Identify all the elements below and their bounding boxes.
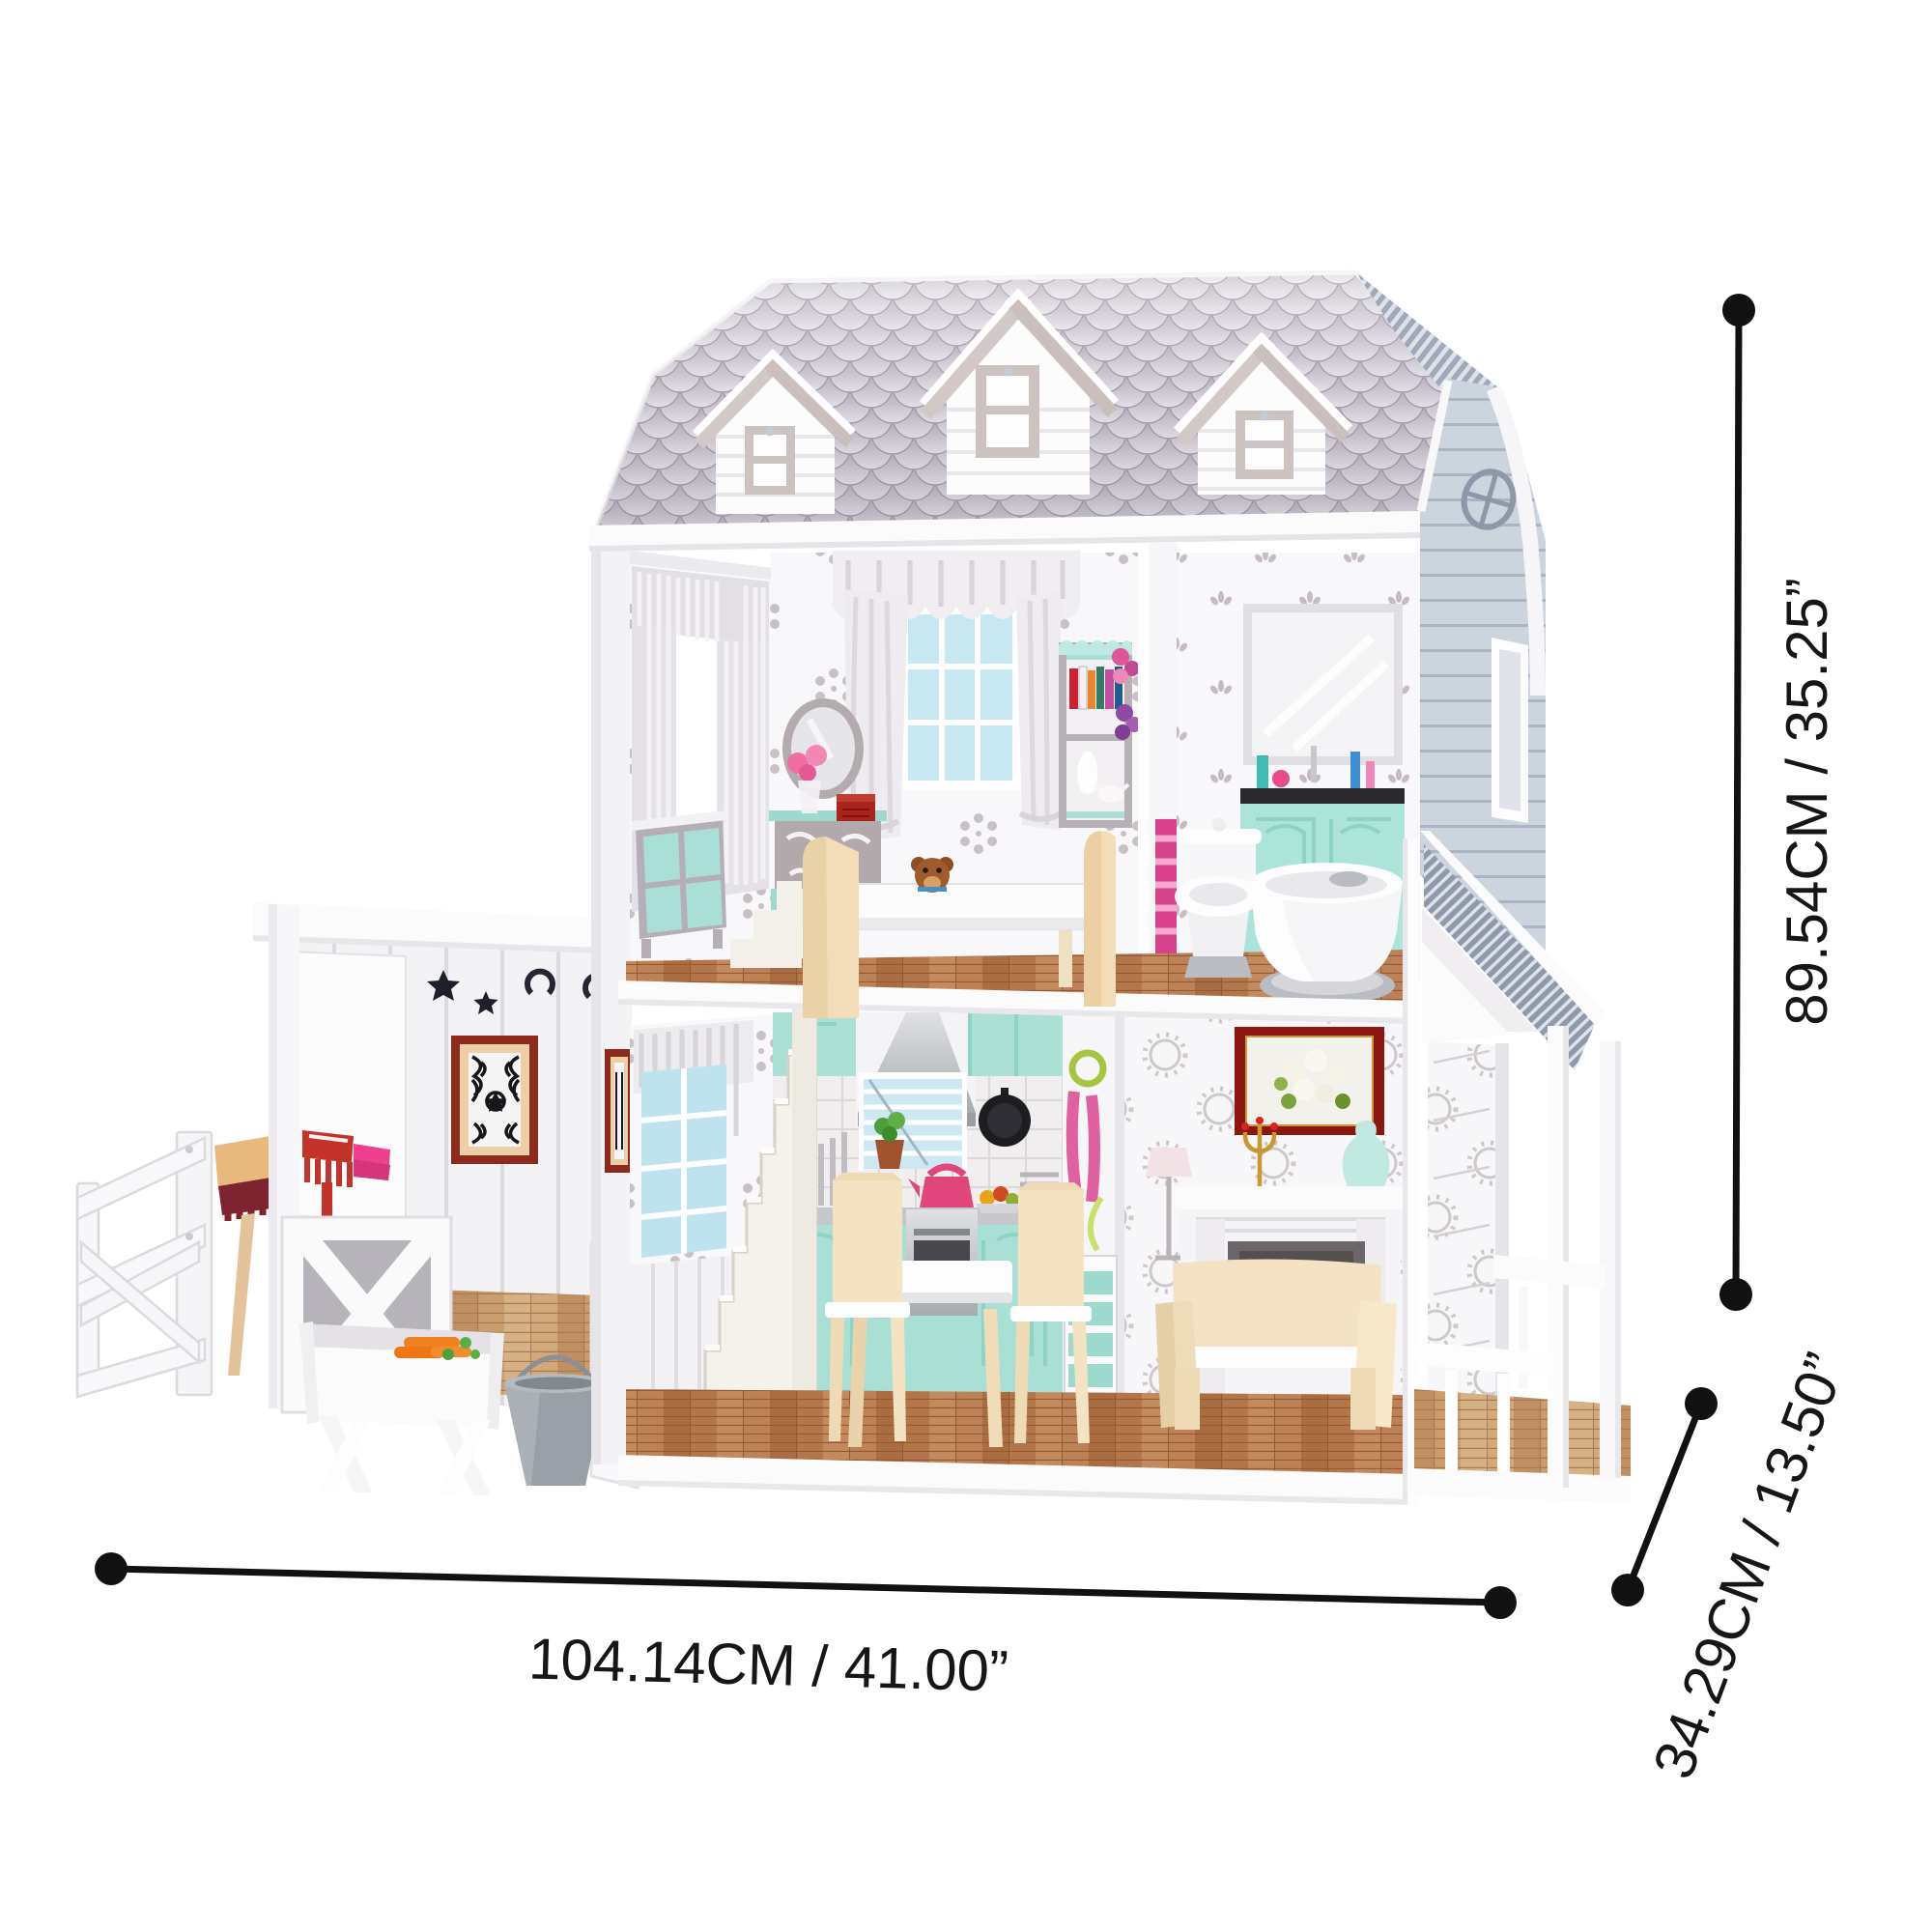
svg-text:104.14CM / 41.00”: 104.14CM / 41.00” (527, 1627, 1009, 1704)
svg-text:89.54CM / 35.25”: 89.54CM / 35.25” (1775, 578, 1839, 1026)
